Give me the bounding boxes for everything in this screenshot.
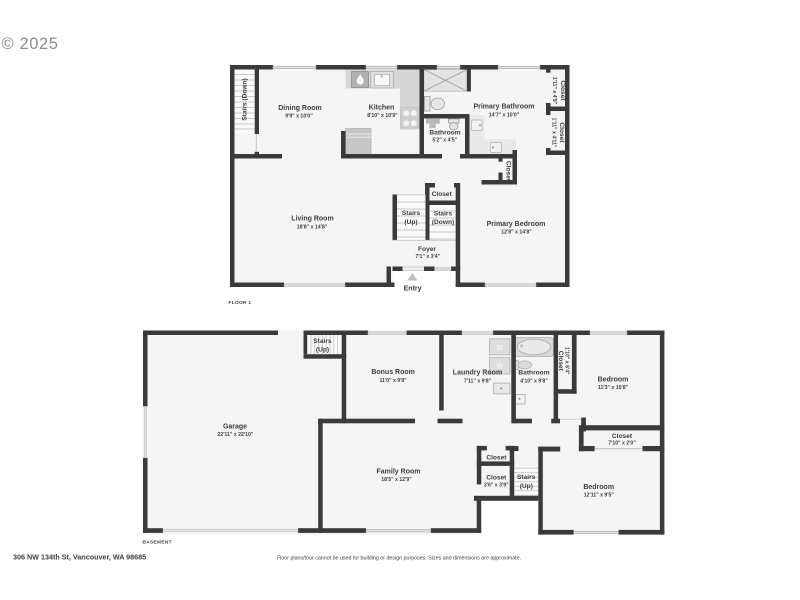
svg-text:12'8" x 14'8": 12'8" x 14'8" [501, 230, 532, 236]
svg-text:1'11" x 4'11": 1'11" x 4'11" [551, 118, 557, 148]
svg-text:Primary Bedroom: Primary Bedroom [487, 221, 546, 228]
svg-text:Stairs: Stairs [313, 338, 332, 345]
svg-text:FLOOR 1: FLOOR 1 [229, 300, 252, 306]
svg-text:Closet: Closet [559, 80, 566, 101]
svg-text:3'6" x 3'9": 3'6" x 3'9" [484, 483, 509, 489]
svg-text:11'0" x 9'8": 11'0" x 9'8" [379, 378, 407, 384]
svg-text:BASEMENT: BASEMENT [143, 540, 172, 546]
svg-text:12'11" x 9'5": 12'11" x 9'5" [584, 492, 615, 498]
svg-text:14'7" x 10'0": 14'7" x 10'0" [489, 112, 520, 118]
svg-text:(Down): (Down) [432, 219, 454, 226]
svg-text:Dining Room: Dining Room [278, 105, 322, 112]
svg-text:306 NW 134th St, Vancouver, WA: 306 NW 134th St, Vancouver, WA 98685 [13, 553, 146, 562]
svg-text:5'2" x 4'5": 5'2" x 4'5" [432, 137, 457, 143]
svg-text:18'5" x 12'9": 18'5" x 12'9" [381, 477, 412, 483]
svg-text:Family Room: Family Room [377, 468, 421, 475]
svg-text:22'11" x 22'10": 22'11" x 22'10" [217, 432, 253, 438]
svg-text:© 2025: © 2025 [2, 35, 59, 53]
svg-text:7'10" x 2'0": 7'10" x 2'0" [608, 441, 636, 447]
svg-text:Closet: Closet [486, 475, 507, 482]
svg-text:Stairs: Stairs [434, 210, 453, 217]
svg-text:Bonus Room: Bonus Room [371, 369, 415, 376]
svg-text:11'3" x 10'8": 11'3" x 10'8" [598, 385, 629, 391]
svg-text:Closet: Closet [432, 191, 453, 198]
svg-text:7'1" x 3'4": 7'1" x 3'4" [415, 254, 440, 260]
svg-text:D: D [497, 345, 502, 352]
svg-text:(Up): (Up) [404, 219, 417, 226]
svg-text:Floor plans/tour cannot be use: Floor plans/tour cannot be used for buil… [277, 556, 521, 562]
svg-text:Stairs: Stairs [517, 474, 536, 481]
svg-text:Closet: Closet [557, 351, 564, 372]
svg-text:Bedroom: Bedroom [598, 377, 629, 384]
svg-text:Laundry Room: Laundry Room [453, 370, 502, 377]
svg-text:(Up): (Up) [316, 346, 329, 353]
svg-text:Closet: Closet [558, 122, 565, 143]
svg-text:18'8" x 14'8": 18'8" x 14'8" [297, 224, 328, 230]
svg-text:Foyer: Foyer [418, 246, 436, 253]
svg-text:4'10" x 9'8": 4'10" x 9'8" [520, 378, 548, 384]
svg-text:Closet: Closet [612, 433, 633, 440]
svg-text:9'9" x 10'0": 9'9" x 10'0" [285, 113, 313, 119]
svg-text:7'11" x 9'8": 7'11" x 9'8" [464, 378, 492, 384]
svg-text:Stairs: Stairs [402, 210, 421, 217]
svg-text:(Up): (Up) [520, 483, 533, 490]
svg-text:Stairs (Down): Stairs (Down) [242, 78, 249, 121]
svg-text:Garage: Garage [223, 423, 247, 430]
svg-text:Living Room: Living Room [291, 216, 333, 223]
svg-text:1'11" x 4'9": 1'11" x 4'9" [551, 77, 557, 105]
svg-text:Bedroom: Bedroom [583, 484, 614, 491]
svg-text:Kitchen: Kitchen [369, 105, 395, 112]
svg-text:Bathroom: Bathroom [518, 370, 549, 377]
svg-text:1'10" x 6'4": 1'10" x 6'4" [563, 347, 569, 375]
svg-text:Closet: Closet [504, 161, 511, 182]
svg-text:Closet: Closet [486, 454, 507, 461]
svg-text:Entry: Entry [404, 286, 422, 293]
svg-text:8'10" x 10'9": 8'10" x 10'9" [367, 113, 398, 119]
svg-text:Primary Bathroom: Primary Bathroom [473, 104, 534, 111]
svg-text:Bathroom: Bathroom [429, 129, 460, 136]
